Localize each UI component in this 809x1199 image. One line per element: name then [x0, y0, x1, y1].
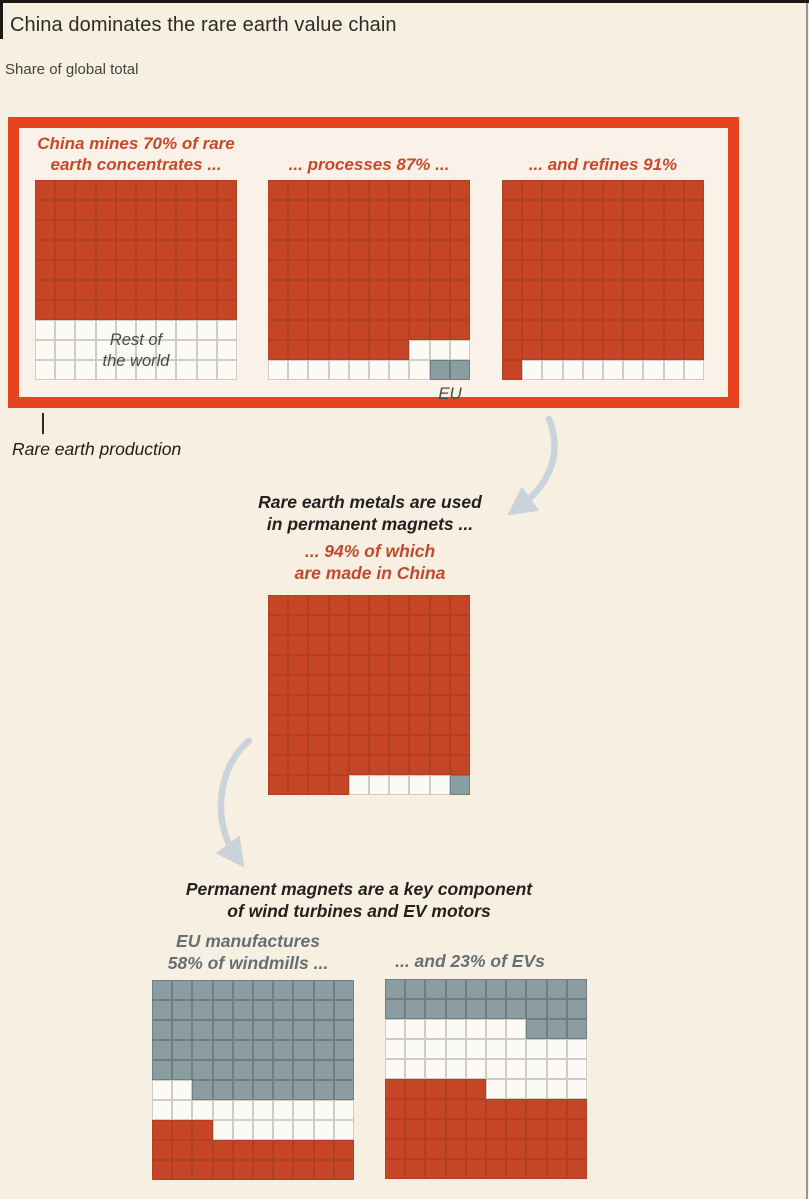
- waffle-cell: [369, 675, 389, 695]
- waffle-cell: [308, 715, 328, 735]
- waffle-cell: [425, 999, 445, 1019]
- waffle-cell: [213, 1060, 233, 1080]
- waffle-cell: [506, 1079, 526, 1099]
- waffle-cell: [425, 1079, 445, 1099]
- waffle-cell: [664, 280, 684, 300]
- magnets-intro-text: Rare earth metals are used in permanent …: [220, 491, 520, 535]
- waffle-cell: [314, 1020, 334, 1040]
- magnets-china-share-text: ... 94% of which are made in China: [220, 540, 520, 584]
- waffle-cell: [349, 595, 369, 615]
- waffle-cell: [623, 220, 643, 240]
- waffle-cell: [603, 200, 623, 220]
- waffle-cell: [430, 755, 450, 775]
- waffle-cell: [96, 220, 116, 240]
- waffle-cell: [506, 1139, 526, 1159]
- waffle-cell: [329, 180, 349, 200]
- waffle-cell: [116, 280, 136, 300]
- waffle-cell: [192, 1080, 212, 1100]
- waffle-cell: [152, 1100, 172, 1120]
- waffle-cell: [288, 735, 308, 755]
- waffle-cell: [583, 240, 603, 260]
- waffle-cell: [385, 1119, 405, 1139]
- waffle-cell: [293, 980, 313, 1000]
- waffle-cell: [233, 980, 253, 1000]
- waffle-cell: [136, 300, 156, 320]
- waffle-cell: [430, 340, 450, 360]
- waffle-cell: [334, 1020, 354, 1040]
- waffle-cell: [409, 340, 429, 360]
- axis-tick: [42, 413, 44, 434]
- waffle-cell: [409, 755, 429, 775]
- waffle-cell: [547, 999, 567, 1019]
- waffle-cell: [603, 180, 623, 200]
- waffle-cell: [450, 240, 470, 260]
- waffle-cell: [116, 240, 136, 260]
- waffle-cell: [268, 775, 288, 795]
- waffle-cell: [526, 1039, 546, 1059]
- waffle-cell: [409, 735, 429, 755]
- waffle-cell: [273, 1100, 293, 1120]
- waffle-cell: [446, 1139, 466, 1159]
- waffle-cell: [273, 1120, 293, 1140]
- waffle-cell: [466, 1119, 486, 1139]
- waffle-cell: [466, 979, 486, 999]
- waffle-cell: [329, 635, 349, 655]
- waffle-cell: [334, 1100, 354, 1120]
- waffle-cell: [314, 1100, 334, 1120]
- waffle-cell: [75, 200, 95, 220]
- waffle-chart-evs: [385, 979, 587, 1179]
- waffle-cell: [152, 1080, 172, 1100]
- waffle-cell: [430, 360, 450, 380]
- waffle-cell: [547, 1099, 567, 1119]
- waffle-cell: [369, 595, 389, 615]
- chart-heading-evs: ... and 23% of EVs: [370, 950, 570, 972]
- waffle-cell: [329, 240, 349, 260]
- waffle-cell: [213, 980, 233, 1000]
- waffle-cell: [603, 260, 623, 280]
- waffle-cell: [446, 1099, 466, 1119]
- waffle-cell: [547, 979, 567, 999]
- waffle-cell: [253, 1020, 273, 1040]
- waffle-cell: [213, 1080, 233, 1100]
- waffle-cell: [268, 340, 288, 360]
- waffle-cell: [542, 180, 562, 200]
- waffle-cell: [253, 1080, 273, 1100]
- waffle-cell: [466, 1079, 486, 1099]
- waffle-cell: [268, 200, 288, 220]
- waffle-cell: [192, 1120, 212, 1140]
- waffle-cell: [623, 300, 643, 320]
- waffle-cell: [643, 200, 663, 220]
- waffle-cell: [502, 340, 522, 360]
- waffle-cell: [192, 1100, 212, 1120]
- waffle-cell: [466, 1039, 486, 1059]
- waffle-cell: [563, 340, 583, 360]
- waffle-cell: [369, 340, 389, 360]
- waffle-cell: [563, 300, 583, 320]
- waffle-cell: [522, 340, 542, 360]
- waffle-cell: [268, 715, 288, 735]
- waffle-cell: [349, 340, 369, 360]
- rare-earth-production-label: Rare earth production: [12, 439, 181, 460]
- waffle-cell: [152, 1040, 172, 1060]
- waffle-cell: [233, 1000, 253, 1020]
- waffle-cell: [197, 280, 217, 300]
- waffle-cell: [273, 1020, 293, 1040]
- waffle-cell: [502, 200, 522, 220]
- chart-heading-windmills: EU manufactures 58% of windmills ...: [148, 930, 348, 974]
- waffle-cell: [273, 1140, 293, 1160]
- waffle-cell: [547, 1139, 567, 1159]
- waffle-cell: [583, 200, 603, 220]
- waffle-cell: [156, 220, 176, 240]
- waffle-cell: [450, 715, 470, 735]
- chart-heading-mining: China mines 70% of rare earth concentrat…: [25, 123, 247, 175]
- waffle-cell: [430, 675, 450, 695]
- waffle-cell: [563, 240, 583, 260]
- waffle-cell: [314, 1160, 334, 1180]
- waffle-cell: [273, 1160, 293, 1180]
- waffle-cell: [405, 979, 425, 999]
- waffle-cell: [684, 260, 704, 280]
- waffle-cell: [603, 240, 623, 260]
- waffle-cell: [430, 260, 450, 280]
- waffle-cell: [268, 735, 288, 755]
- waffle-cell: [603, 360, 623, 380]
- waffle-cell: [308, 180, 328, 200]
- waffle-cell: [506, 1119, 526, 1139]
- waffle-cell: [542, 200, 562, 220]
- waffle-cell: [684, 180, 704, 200]
- waffle-cell: [664, 220, 684, 240]
- waffle-cell: [583, 180, 603, 200]
- waffle-cell: [623, 320, 643, 340]
- waffle-cell: [684, 220, 704, 240]
- waffle-cell: [430, 655, 450, 675]
- waffle-cell: [308, 755, 328, 775]
- waffle-cell: [466, 1159, 486, 1179]
- waffle-cell: [136, 180, 156, 200]
- waffle-cell: [176, 260, 196, 280]
- waffle-cell: [506, 979, 526, 999]
- waffle-cell: [156, 260, 176, 280]
- waffle-cell: [213, 1160, 233, 1180]
- waffle-cell: [308, 220, 328, 240]
- waffle-cell: [152, 1160, 172, 1180]
- waffle-cell: [567, 1039, 587, 1059]
- waffle-cell: [369, 200, 389, 220]
- waffle-cell: [450, 775, 470, 795]
- waffle-cell: [563, 320, 583, 340]
- waffle-cell: [542, 360, 562, 380]
- waffle-cell: [522, 280, 542, 300]
- waffle-cell: [425, 1019, 445, 1039]
- waffle-cell: [643, 340, 663, 360]
- waffle-cell: [430, 200, 450, 220]
- waffle-cell: [664, 360, 684, 380]
- waffle-cell: [446, 1039, 466, 1059]
- waffle-cell: [506, 1099, 526, 1119]
- waffle-cell: [329, 775, 349, 795]
- waffle-cell: [526, 979, 546, 999]
- waffle-cell: [96, 180, 116, 200]
- waffle-cell: [389, 635, 409, 655]
- waffle-cell: [308, 240, 328, 260]
- waffle-cell: [308, 280, 328, 300]
- waffle-cell: [583, 260, 603, 280]
- waffle-cell: [409, 675, 429, 695]
- waffle-cell: [526, 1119, 546, 1139]
- waffle-cell: [329, 655, 349, 675]
- chart-heading-processing: ... processes 87% ...: [258, 123, 480, 175]
- waffle-cell: [522, 240, 542, 260]
- waffle-cell: [450, 340, 470, 360]
- waffle-cell: [450, 635, 470, 655]
- waffle-cell: [288, 775, 308, 795]
- waffle-cell: [563, 220, 583, 240]
- waffle-cell: [409, 775, 429, 795]
- waffle-cell: [502, 280, 522, 300]
- waffle-cell: [526, 1079, 546, 1099]
- waffle-cell: [308, 340, 328, 360]
- waffle-cell: [389, 755, 409, 775]
- waffle-cell: [253, 1140, 273, 1160]
- waffle-cell: [293, 1120, 313, 1140]
- waffle-cell: [288, 655, 308, 675]
- waffle-cell: [288, 675, 308, 695]
- waffle-cell: [405, 1039, 425, 1059]
- waffle-cell: [506, 1039, 526, 1059]
- waffle-cell: [385, 1099, 405, 1119]
- waffle-cell: [55, 200, 75, 220]
- waffle-cell: [486, 979, 506, 999]
- waffle-cell: [233, 1080, 253, 1100]
- waffle-cell: [450, 695, 470, 715]
- waffle-cell: [268, 320, 288, 340]
- waffle-cell: [288, 240, 308, 260]
- waffle-cell: [385, 1139, 405, 1159]
- waffle-cell: [563, 180, 583, 200]
- waffle-cell: [502, 260, 522, 280]
- waffle-cell: [385, 1019, 405, 1039]
- waffle-cell: [430, 715, 450, 735]
- waffle-cell: [197, 180, 217, 200]
- waffle-cell: [389, 615, 409, 635]
- waffle-cell: [172, 1020, 192, 1040]
- waffle-cell: [268, 360, 288, 380]
- waffle-cell: [308, 300, 328, 320]
- waffle-cell: [430, 595, 450, 615]
- waffle-cell: [405, 1059, 425, 1079]
- waffle-cell: [486, 1159, 506, 1179]
- waffle-cell: [217, 260, 237, 280]
- waffle-cell: [96, 280, 116, 300]
- waffle-cell: [623, 280, 643, 300]
- waffle-cell: [409, 280, 429, 300]
- waffle-cell: [334, 1000, 354, 1020]
- waffle-cell: [308, 695, 328, 715]
- waffle-cell: [664, 240, 684, 260]
- waffle-cell: [329, 675, 349, 695]
- waffle-cell: [293, 1160, 313, 1180]
- waffle-cell: [329, 340, 349, 360]
- waffle-cell: [405, 999, 425, 1019]
- waffle-cell: [213, 1100, 233, 1120]
- waffle-cell: [385, 1079, 405, 1099]
- waffle-cell: [430, 300, 450, 320]
- waffle-cell: [293, 1100, 313, 1120]
- waffle-cell: [156, 300, 176, 320]
- waffle-cell: [547, 1019, 567, 1039]
- waffle-cell: [152, 1020, 172, 1040]
- waffle-cell: [409, 615, 429, 635]
- waffle-cell: [567, 1079, 587, 1099]
- waffle-cell: [502, 300, 522, 320]
- waffle-cell: [405, 1019, 425, 1039]
- waffle-cell: [502, 320, 522, 340]
- waffle-cell: [389, 280, 409, 300]
- waffle-cell: [405, 1119, 425, 1139]
- waffle-cell: [409, 200, 429, 220]
- waffle-cell: [664, 300, 684, 320]
- waffle-cell: [176, 300, 196, 320]
- waffle-cell: [542, 240, 562, 260]
- waffle-cell: [329, 755, 349, 775]
- waffle-cell: [253, 1160, 273, 1180]
- waffle-cell: [623, 240, 643, 260]
- waffle-cell: [288, 300, 308, 320]
- waffle-cell: [136, 240, 156, 260]
- waffle-cell: [136, 260, 156, 280]
- waffle-cell: [172, 1060, 192, 1080]
- waffle-cell: [35, 260, 55, 280]
- waffle-cell: [486, 999, 506, 1019]
- waffle-cell: [450, 615, 470, 635]
- waffle-cell: [522, 180, 542, 200]
- waffle-cell: [293, 1020, 313, 1040]
- waffle-cell: [329, 300, 349, 320]
- waffle-cell: [334, 980, 354, 1000]
- waffle-cell: [152, 1000, 172, 1020]
- waffle-cell: [684, 360, 704, 380]
- waffle-cell: [567, 1159, 587, 1179]
- waffle-cell: [152, 1120, 172, 1140]
- waffle-cell: [253, 1040, 273, 1060]
- waffle-cell: [486, 1059, 506, 1079]
- waffle-cell: [349, 715, 369, 735]
- waffle-cell: [684, 200, 704, 220]
- waffle-cell: [268, 615, 288, 635]
- waffle-cell: [96, 300, 116, 320]
- waffle-cell: [506, 1019, 526, 1039]
- waffle-cell: [547, 1159, 567, 1179]
- waffle-cell: [506, 1059, 526, 1079]
- waffle-cell: [450, 320, 470, 340]
- waffle-cell: [389, 775, 409, 795]
- waffle-cell: [329, 220, 349, 240]
- waffle-cell: [369, 180, 389, 200]
- waffle-cell: [152, 1140, 172, 1160]
- waffle-cell: [233, 1160, 253, 1180]
- waffle-cell: [385, 999, 405, 1019]
- waffle-cell: [253, 1100, 273, 1120]
- waffle-cell: [430, 220, 450, 240]
- chart-heading-refining: ... and refines 91%: [492, 123, 714, 175]
- waffle-cell: [288, 360, 308, 380]
- waffle-cell: [664, 340, 684, 360]
- waffle-cell: [293, 1040, 313, 1060]
- waffle-cell: [567, 1139, 587, 1159]
- page-edge-notch: [0, 3, 3, 39]
- waffle-cell: [466, 1059, 486, 1079]
- waffle-cell: [643, 300, 663, 320]
- waffle-cell: [425, 1159, 445, 1179]
- waffle-cell: [197, 200, 217, 220]
- waffle-cell: [217, 280, 237, 300]
- waffle-cell: [75, 240, 95, 260]
- waffle-cell: [409, 595, 429, 615]
- waffle-cell: [308, 595, 328, 615]
- waffle-cell: [288, 695, 308, 715]
- waffle-cell: [334, 1120, 354, 1140]
- waffle-cell: [233, 1040, 253, 1060]
- waffle-cell: [156, 240, 176, 260]
- waffle-cell: [233, 1140, 253, 1160]
- waffle-cell: [430, 615, 450, 635]
- waffle-cell: [268, 595, 288, 615]
- waffle-cell: [233, 1100, 253, 1120]
- waffle-cell: [603, 340, 623, 360]
- waffle-cell: [389, 695, 409, 715]
- waffle-cell: [385, 1039, 405, 1059]
- waffle-cell: [176, 220, 196, 240]
- waffle-cell: [389, 260, 409, 280]
- waffle-cell: [253, 1060, 273, 1080]
- waffle-cell: [116, 220, 136, 240]
- waffle-cell: [288, 280, 308, 300]
- waffle-cell: [233, 1060, 253, 1080]
- waffle-cell: [176, 200, 196, 220]
- waffle-cell: [450, 200, 470, 220]
- waffle-cell: [369, 635, 389, 655]
- waffle-cell: [567, 999, 587, 1019]
- waffle-cell: [526, 1019, 546, 1039]
- waffle-cell: [567, 1099, 587, 1119]
- waffle-cell: [643, 360, 663, 380]
- waffle-cell: [55, 280, 75, 300]
- waffle-cell: [268, 220, 288, 240]
- waffle-cell: [329, 735, 349, 755]
- waffle-cell: [329, 595, 349, 615]
- waffle-cell: [288, 180, 308, 200]
- waffle-cell: [542, 340, 562, 360]
- waffle-cell: [213, 1140, 233, 1160]
- waffle-cell: [389, 240, 409, 260]
- waffle-cell: [293, 1000, 313, 1020]
- waffle-cell: [268, 260, 288, 280]
- waffle-cell: [369, 240, 389, 260]
- waffle-cell: [217, 180, 237, 200]
- waffle-cell: [664, 180, 684, 200]
- waffle-cell: [288, 320, 308, 340]
- waffle-cell: [542, 220, 562, 240]
- waffle-cell: [334, 1160, 354, 1180]
- waffle-cell: [425, 1119, 445, 1139]
- waffle-cell: [349, 735, 369, 755]
- waffle-cell: [522, 360, 542, 380]
- waffle-cell: [466, 1139, 486, 1159]
